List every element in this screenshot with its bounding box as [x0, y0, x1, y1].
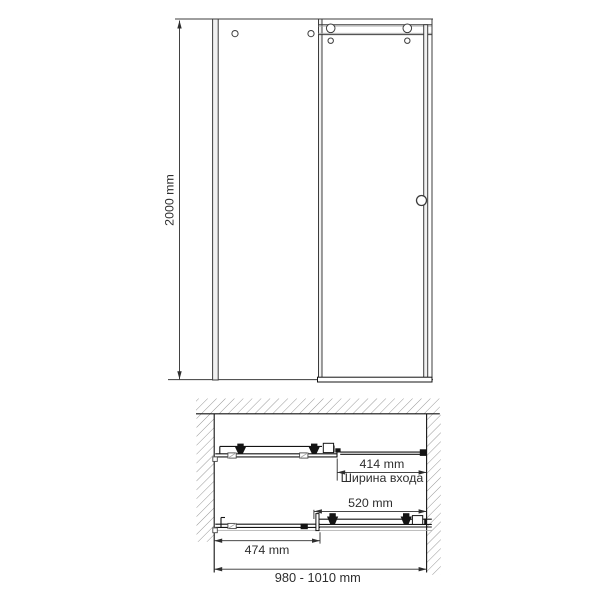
wall-hatching-top	[196, 399, 440, 414]
wall-profile-end	[213, 528, 218, 533]
wall-hatching-right	[427, 414, 441, 575]
fixed-width-label: 474 mm	[245, 543, 290, 557]
wall-hatching-left	[197, 414, 215, 542]
wall-profile-end	[213, 457, 218, 462]
door-handle	[412, 516, 422, 525]
track-wall-bracket	[420, 449, 427, 456]
technical-drawing-page: 2000 mm	[0, 0, 600, 600]
door-width-label: 520 mm	[348, 496, 393, 510]
glass-clamp-dark	[301, 524, 308, 530]
total-width-label: 980 - 1010 mm	[275, 570, 361, 585]
fixed-panel-edge	[319, 19, 323, 379]
roller-wheel	[403, 24, 412, 33]
glass-mount-hole	[308, 30, 314, 36]
height-dimension-label: 2000 mm	[163, 174, 177, 226]
roller-wheel	[326, 24, 335, 33]
background	[0, 0, 600, 600]
handle-bracket-block	[335, 448, 340, 452]
wall-profile-left	[213, 19, 219, 380]
door-handle-knob	[417, 196, 427, 206]
entrance-width-label: 414 mm	[360, 457, 405, 471]
entrance-width-caption: Ширина входа	[341, 471, 424, 485]
guide-wheel	[405, 38, 410, 43]
shower-door-technical-drawing: 2000 mm	[0, 0, 600, 600]
glass-clamp	[300, 453, 308, 458]
glass-mount-hole	[232, 30, 238, 36]
guide-wheel	[328, 38, 333, 43]
door-edge-bracket	[316, 514, 319, 531]
glass-clamp	[228, 523, 236, 528]
wall-stop-block	[424, 519, 427, 525]
door-handle	[323, 443, 333, 452]
glass-clamp	[228, 453, 236, 458]
door-bottom-rail	[318, 377, 433, 382]
